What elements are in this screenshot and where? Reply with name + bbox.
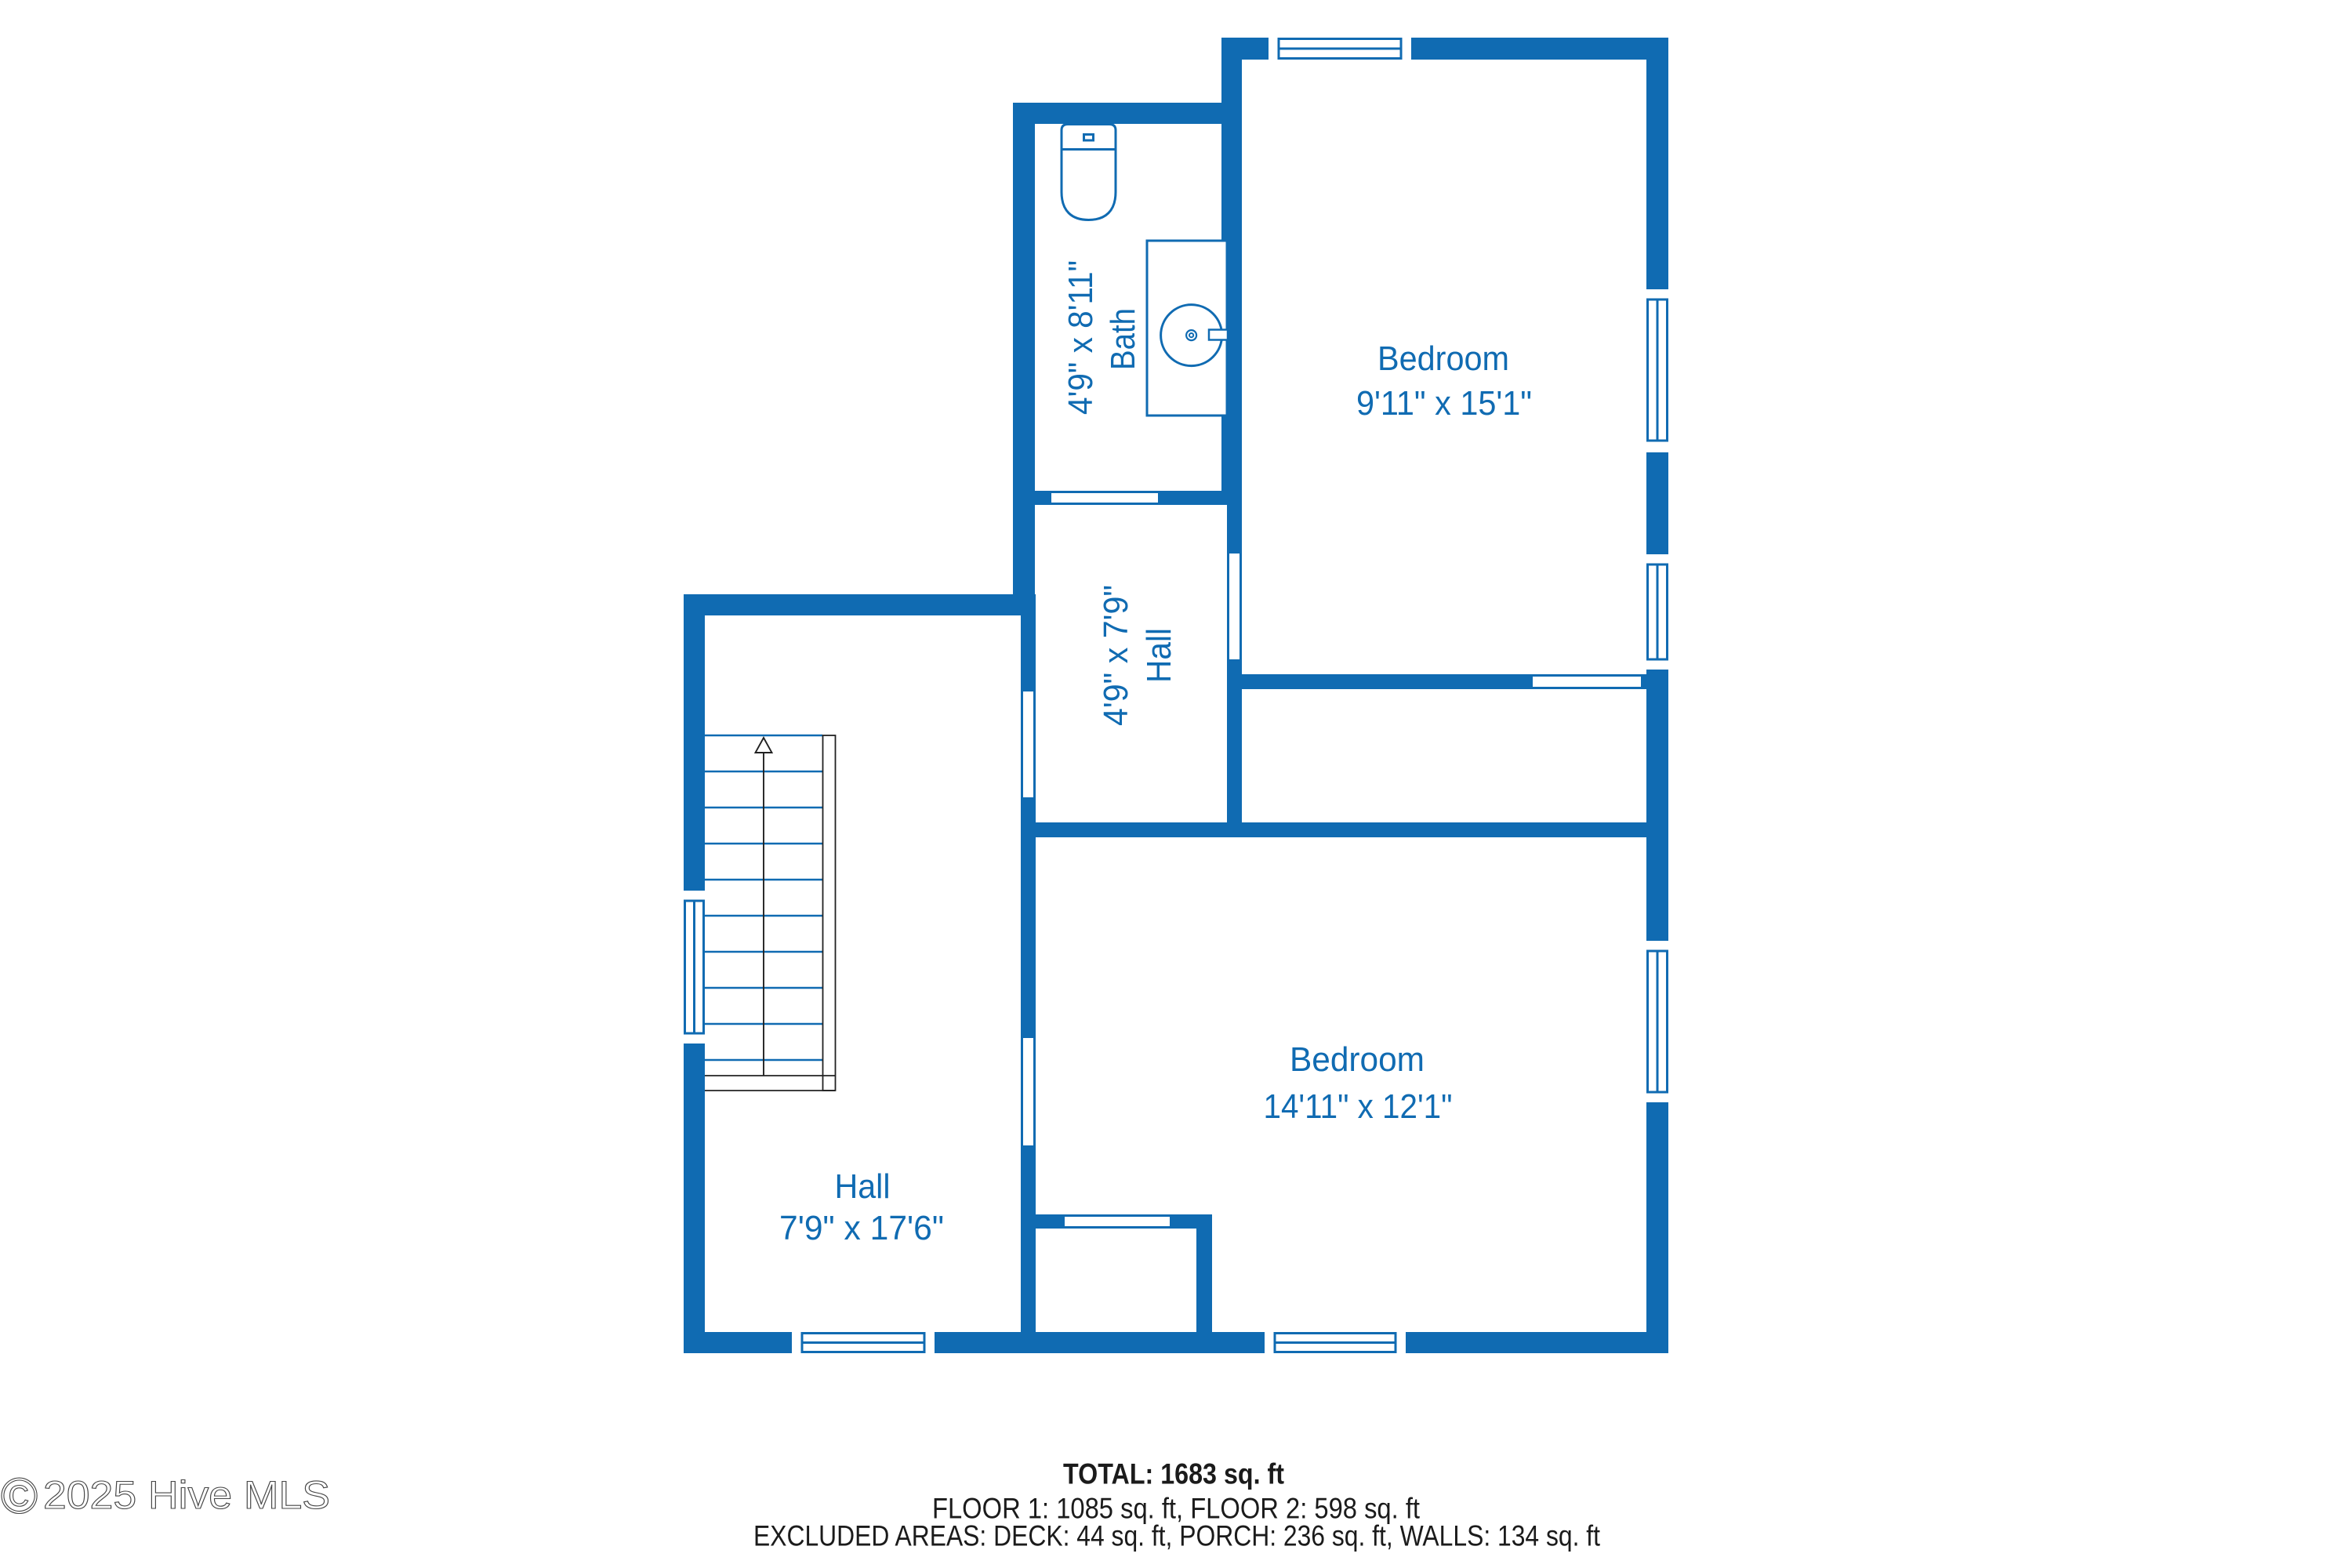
svg-text:EXCLUDED AREAS: DECK: 44 sq. f: EXCLUDED AREAS: DECK: 44 sq. ft, PORCH: …	[753, 1520, 1601, 1552]
svg-text:Hall: Hall	[835, 1167, 891, 1206]
svg-text:Hall: Hall	[1140, 628, 1178, 683]
svg-text:9'11" x 15'1": 9'11" x 15'1"	[1356, 384, 1532, 423]
svg-text:Bedroom: Bedroom	[1377, 339, 1509, 378]
svg-text:4'9" x 7'9": 4'9" x 7'9"	[1097, 585, 1135, 726]
svg-text:2025 Hive MLS: 2025 Hive MLS	[43, 1473, 330, 1517]
svg-text:7'9" x 17'6": 7'9" x 17'6"	[779, 1209, 944, 1247]
svg-text:14'11" x 12'1": 14'11" x 12'1"	[1264, 1087, 1453, 1126]
svg-text:TOTAL: 1683 sq. ft: TOTAL: 1683 sq. ft	[1063, 1458, 1284, 1490]
svg-text:Bath: Bath	[1104, 308, 1142, 370]
svg-text:Bedroom: Bedroom	[1290, 1040, 1425, 1079]
svg-text:©: ©	[1, 1468, 38, 1524]
svg-text:4'9" x 8'11": 4'9" x 8'11"	[1062, 260, 1100, 415]
